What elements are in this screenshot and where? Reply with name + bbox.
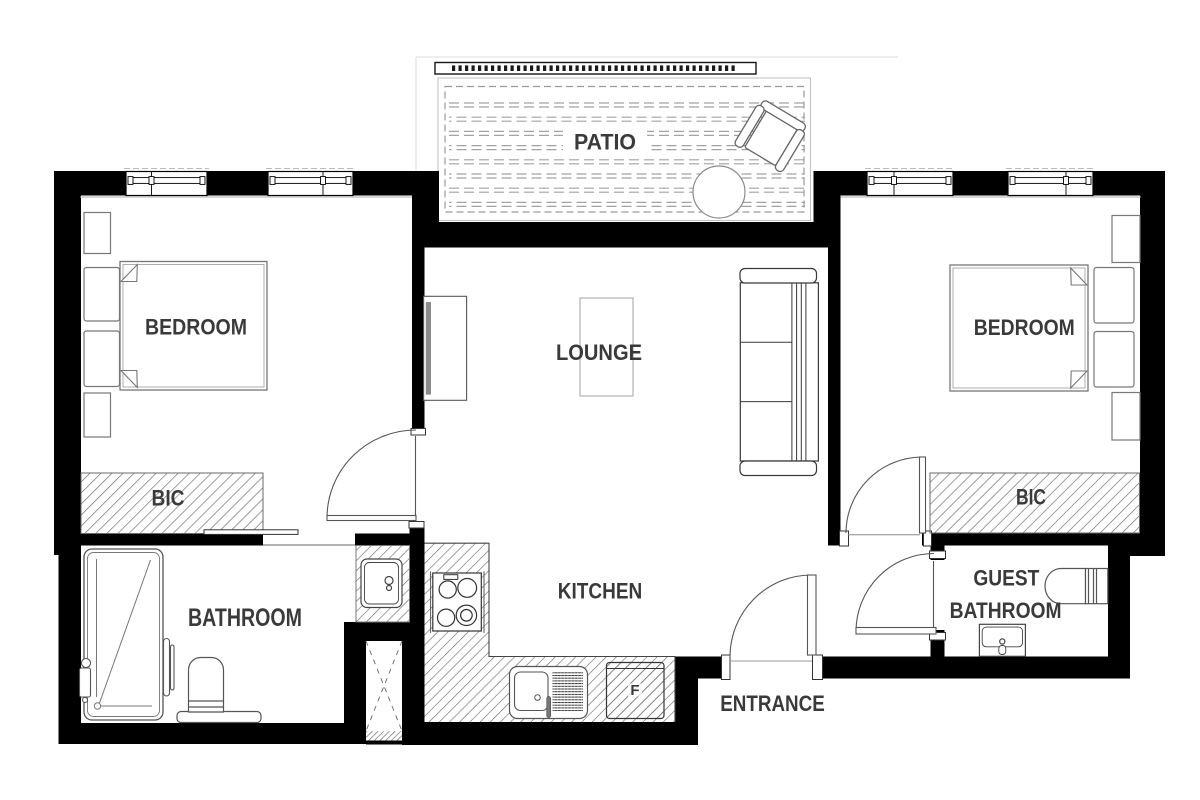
- svg-text:BIC: BIC: [152, 486, 185, 511]
- svg-text:BATHROOM: BATHROOM: [950, 598, 1062, 623]
- svg-text:PATIO: PATIO: [574, 130, 636, 155]
- svg-text:BIC: BIC: [1016, 485, 1046, 510]
- svg-text:GUEST: GUEST: [973, 566, 1039, 591]
- svg-text:KITCHEN: KITCHEN: [558, 579, 643, 604]
- svg-text:BATHROOM: BATHROOM: [188, 604, 302, 632]
- svg-text:ENTRANCE: ENTRANCE: [720, 691, 825, 716]
- svg-text:BEDROOM: BEDROOM: [974, 315, 1075, 340]
- svg-text:F: F: [630, 682, 639, 699]
- svg-text:LOUNGE: LOUNGE: [556, 340, 642, 365]
- svg-text:BEDROOM: BEDROOM: [145, 315, 247, 340]
